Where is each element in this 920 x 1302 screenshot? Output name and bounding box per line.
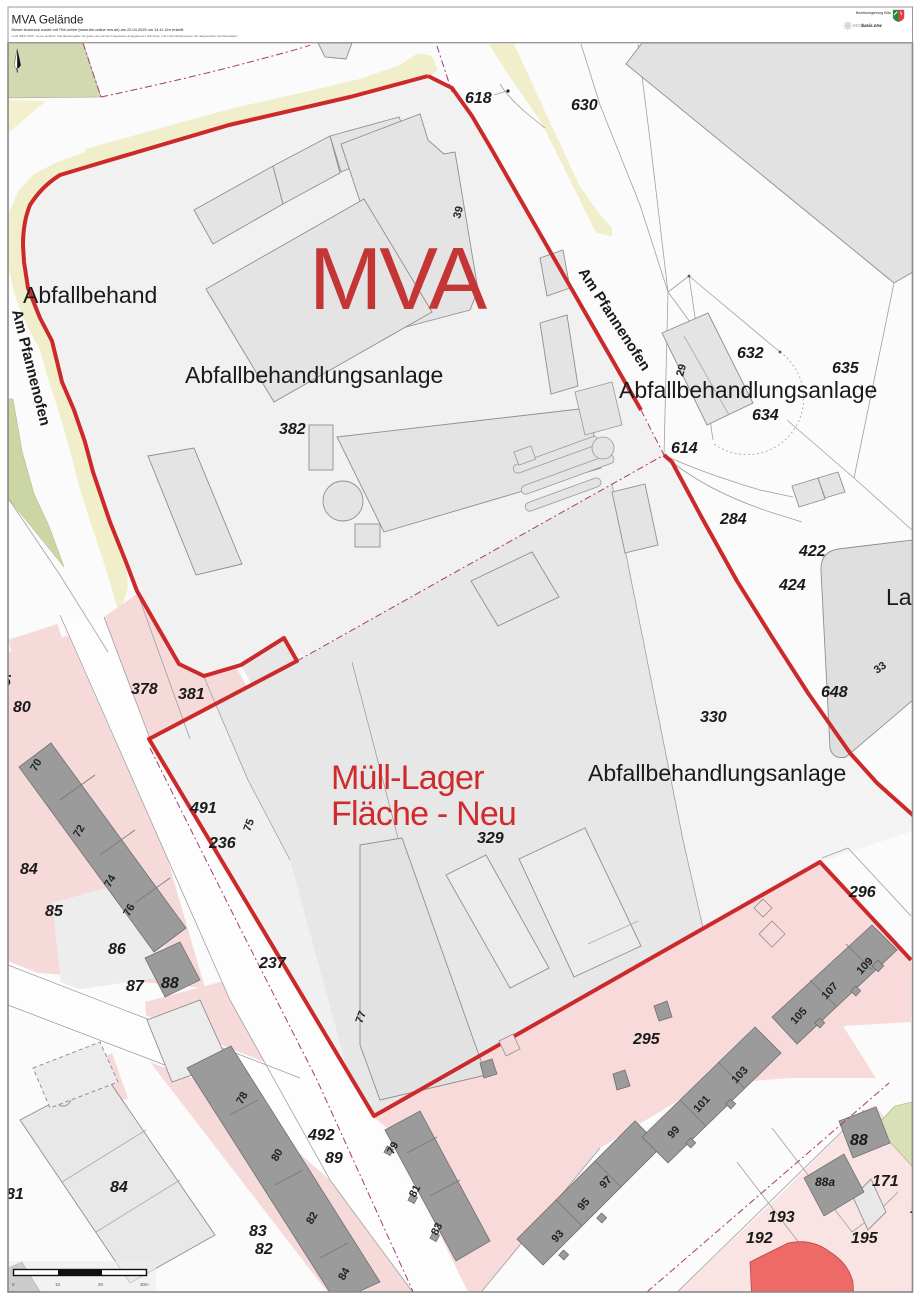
svg-text:Abfallbehandlungsanlage: Abfallbehandlungsanlage	[185, 362, 443, 388]
svg-text:296: 296	[848, 884, 876, 901]
svg-text:618: 618	[465, 90, 492, 107]
svg-text:10: 10	[55, 1282, 61, 1287]
svg-text:382: 382	[279, 421, 306, 438]
svg-text:195: 195	[851, 1230, 879, 1247]
svg-text:Abfallbehandlungsanlage: Abfallbehandlungsanlage	[619, 377, 877, 403]
svg-text:295: 295	[632, 1031, 661, 1048]
svg-text:424: 424	[778, 577, 806, 594]
svg-text:84: 84	[20, 861, 38, 878]
svg-text:236: 236	[208, 835, 236, 852]
svg-text:Abfallbehand: Abfallbehand	[23, 282, 157, 308]
svg-text:88: 88	[850, 1132, 868, 1149]
svg-text:Bezirksregierung Köln: Bezirksregierung Köln	[856, 11, 891, 15]
svg-text:Dieser Ausdruck wurde mit TIM-: Dieser Ausdruck wurde mit TIM-online (ww…	[12, 27, 185, 32]
svg-text:88a: 88a	[815, 1175, 835, 1189]
svg-text:329: 329	[477, 830, 504, 847]
svg-text:30m: 30m	[140, 1282, 149, 1287]
svg-text:Abfallbehandlungsanlage: Abfallbehandlungsanlage	[588, 760, 846, 786]
svg-text:630: 630	[571, 97, 598, 114]
svg-text:80: 80	[13, 699, 31, 716]
svg-text:87: 87	[126, 978, 145, 995]
svg-text:Müll-Lager: Müll-Lager	[331, 759, 484, 797]
svg-text:MVA Gelände: MVA Gelände	[12, 13, 84, 27]
svg-text:20: 20	[98, 1282, 104, 1287]
svg-text:648: 648	[821, 684, 848, 701]
svg-text:MVA: MVA	[309, 229, 487, 328]
svg-text:614: 614	[671, 440, 698, 457]
svg-text:171: 171	[872, 1173, 899, 1190]
svg-text:89: 89	[325, 1150, 343, 1167]
svg-text:84: 84	[110, 1179, 128, 1196]
svg-text:192: 192	[746, 1230, 773, 1247]
svg-text:Land NRW 2025 - Keine amtliche: Land NRW 2025 - Keine amtliche Standarda…	[12, 34, 239, 38]
svg-text:Lager: Lager	[886, 584, 920, 610]
svg-text:83: 83	[249, 1223, 267, 1240]
svg-text:632: 632	[737, 345, 764, 362]
svg-text:Fläche - Neu: Fläche - Neu	[331, 795, 516, 833]
svg-text:381: 381	[178, 686, 205, 703]
svg-text:basis.nrw: basis.nrw	[861, 23, 882, 28]
svg-text:237: 237	[258, 955, 287, 972]
svg-text:422: 422	[798, 543, 826, 560]
svg-text:85: 85	[45, 903, 64, 920]
svg-text:1: 1	[910, 1200, 919, 1217]
svg-text:193: 193	[768, 1209, 795, 1226]
svg-text:491: 491	[189, 800, 217, 817]
svg-text:5: 5	[2, 673, 12, 690]
svg-text:284: 284	[719, 511, 747, 528]
svg-text:82: 82	[255, 1241, 273, 1258]
svg-text:634: 634	[752, 407, 779, 424]
svg-text:330: 330	[700, 709, 727, 726]
svg-text:635: 635	[832, 360, 860, 377]
svg-text:86: 86	[108, 941, 126, 958]
svg-text:88: 88	[161, 975, 179, 992]
svg-text:492: 492	[307, 1127, 335, 1144]
svg-text:378: 378	[131, 681, 158, 698]
